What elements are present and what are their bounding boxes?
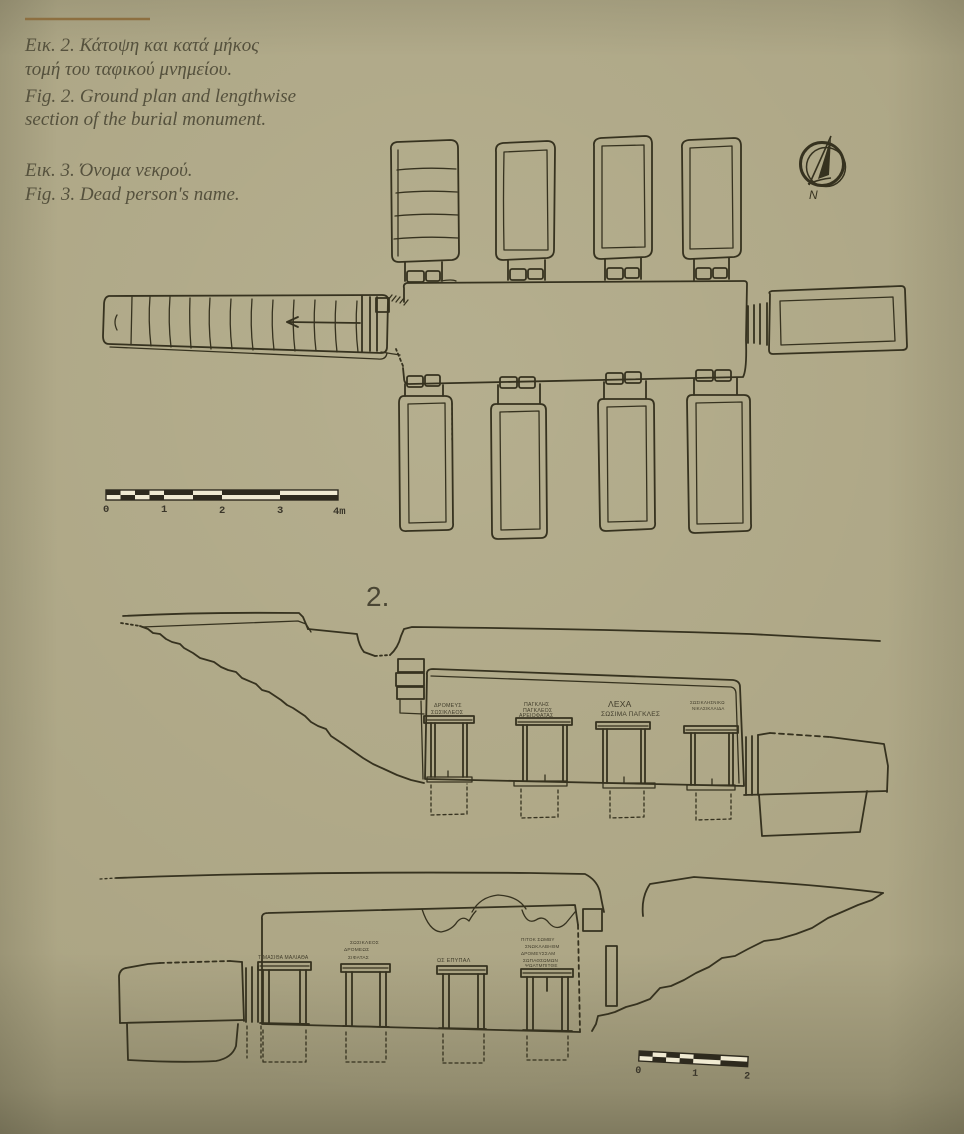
svg-text:ΣΩΣΙΚΛΗΣΝΙΚΩ: ΣΩΣΙΚΛΗΣΝΙΚΩ [690,700,725,705]
svg-text:Εικ. 2. Κάτοψη και κατά μήκος: Εικ. 2. Κάτοψη και κατά μήκος [24,35,259,56]
svg-text:2.: 2. [366,581,389,612]
svg-text:ΝΙΚΑΣΙΚΛΑΙΔΑ: ΝΙΚΑΣΙΚΛΑΙΔΑ [692,706,724,711]
svg-text:ΔΡΟΜΕΥΣΣΑΜ: ΔΡΟΜΕΥΣΣΑΜ [521,951,555,956]
svg-text:ΣΩΣΙΜΑ ΠΑΓΚΛΕΣ: ΣΩΣΙΜΑ ΠΑΓΚΛΕΣ [601,711,660,718]
svg-text:ΔΡΟΜΕΥΣ: ΔΡΟΜΕΥΣ [434,703,462,709]
svg-text:3: 3 [277,505,283,517]
svg-text:ΣΩΣΙΚΛΕΟΣ: ΣΩΣΙΚΛΕΟΣ [350,940,379,946]
svg-text:ΔΡΟΜΕΩΣ: ΔΡΟΜΕΩΣ [344,947,369,953]
svg-text:ΣΝΩΚΛΑΒΗΘΜ: ΣΝΩΚΛΑΒΗΘΜ [525,944,560,949]
svg-text:section of the burial monument: section of the burial monument. [25,109,266,130]
svg-text:Εικ. 3. Όνομα νεκρού.: Εικ. 3. Όνομα νεκρού. [24,160,193,181]
svg-text:ΩΣ ΕΠΥΠΑΛ: ΩΣ ΕΠΥΠΑΛ [437,958,471,964]
svg-text:4m: 4m [333,506,346,518]
svg-text:ΛΕΧΑ: ΛΕΧΑ [608,699,632,709]
svg-text:0: 0 [635,1066,642,1077]
svg-text:ΣΩΣΙΚΛΕΟΣ: ΣΩΣΙΚΛΕΟΣ [431,710,464,716]
svg-text:ΤΙΜΑΣΙΘΑ ΜΑΛΙΑΘΑ: ΤΙΜΑΣΙΘΑ ΜΑΛΙΑΘΑ [258,955,309,961]
svg-text:ΨΩΑΤΜΠΙΤΘΕ: ΨΩΑΤΜΠΙΤΘΕ [525,963,558,968]
svg-text:2: 2 [744,1072,751,1083]
svg-text:ΠΙΤΟΚ ΣΩΜΒΥ: ΠΙΤΟΚ ΣΩΜΒΥ [521,937,555,942]
svg-text:1: 1 [692,1069,699,1080]
svg-text:N: N [809,188,818,202]
svg-text:1: 1 [161,504,167,516]
svg-text:0: 0 [103,504,109,516]
svg-text:Fig. 2. Ground plan and length: Fig. 2. Ground plan and lengthwise [24,86,296,107]
svg-text:Fig. 3. Dead person's name.: Fig. 3. Dead person's name. [24,184,240,205]
svg-text:ΣΙΦΑΤΑΣ: ΣΙΦΑΤΑΣ [348,955,369,961]
svg-text:τομή του ταφικού μνημείου.: τομή του ταφικού μνημείου. [25,59,232,80]
svg-text:2: 2 [219,505,225,517]
svg-text:ΑΡΕΙΟΦΑΤΑΣ: ΑΡΕΙΟΦΑΤΑΣ [519,713,553,719]
